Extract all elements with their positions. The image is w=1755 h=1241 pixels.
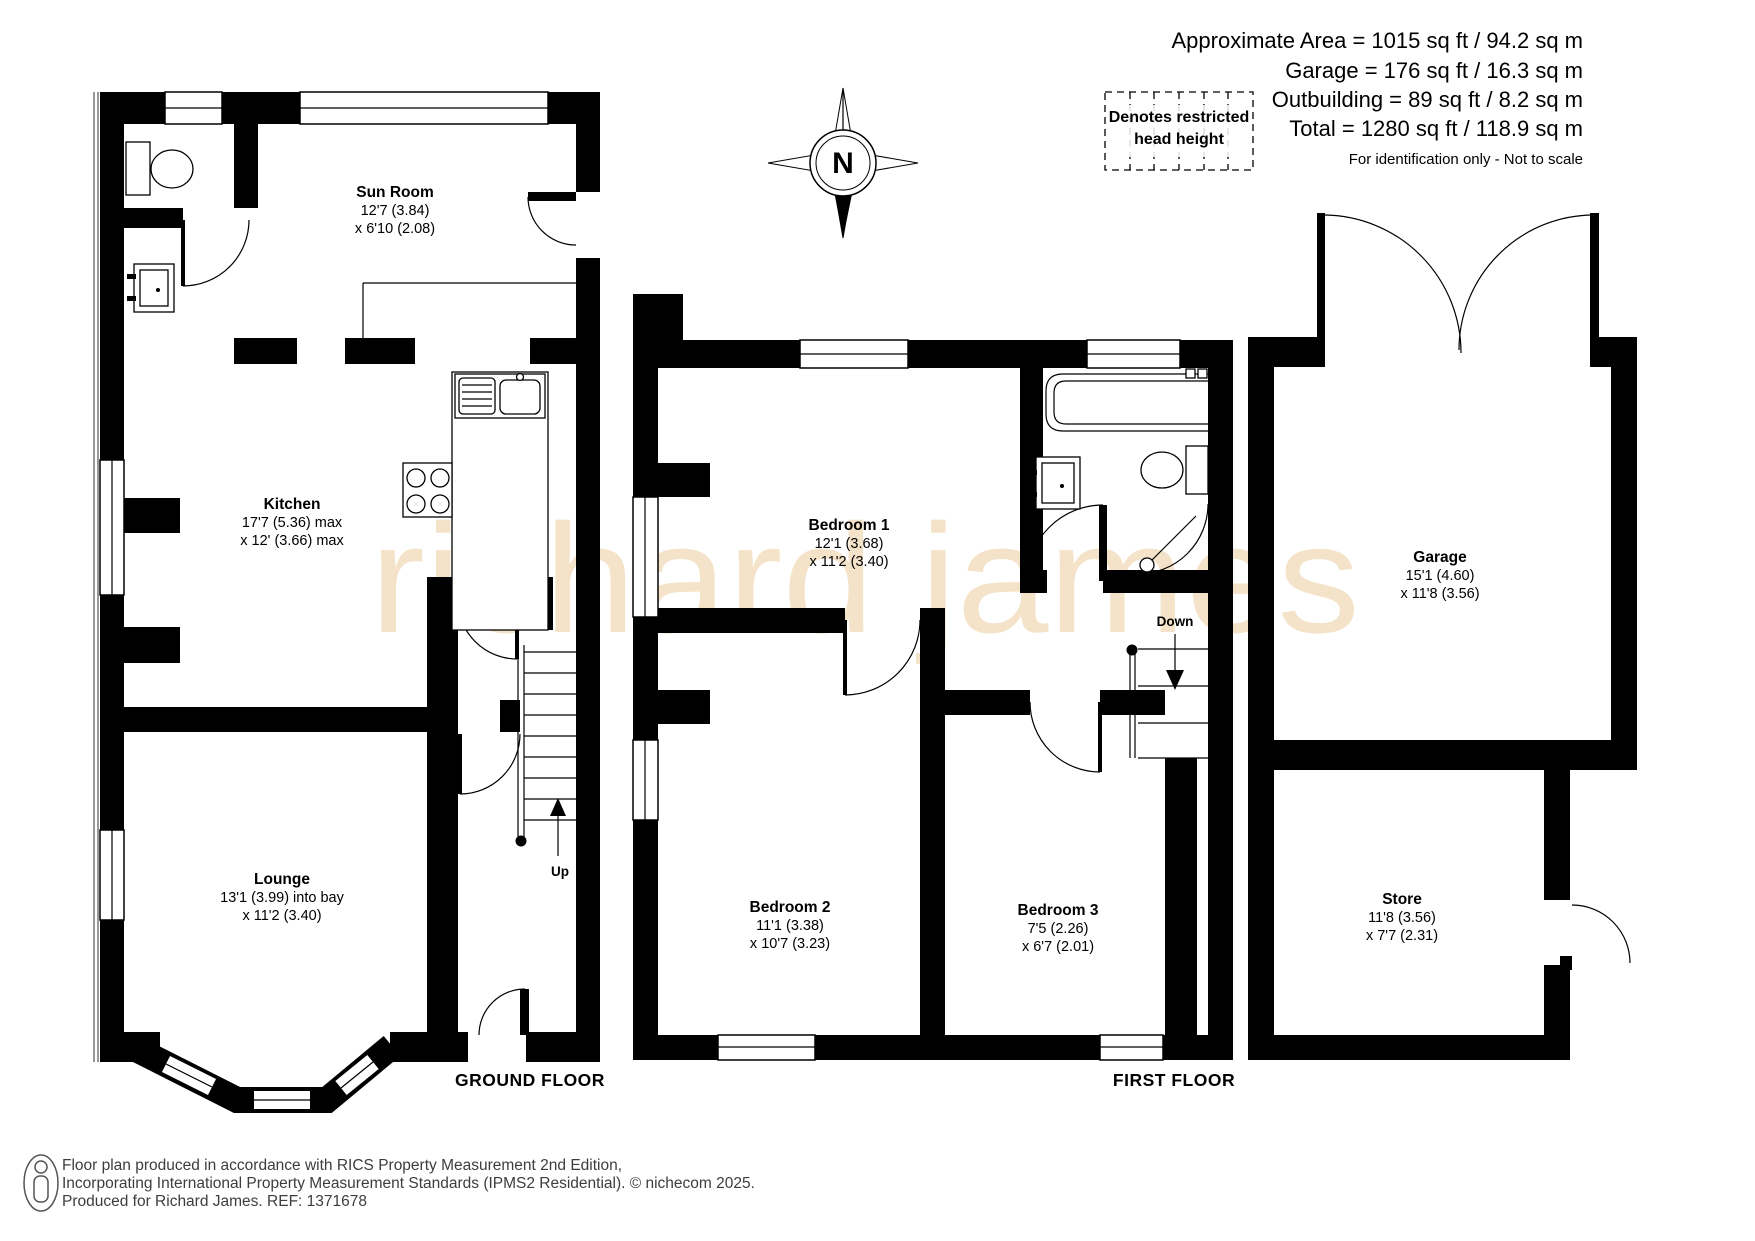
footer-line-1: Floor plan produced in accordance with R…: [62, 1157, 622, 1174]
svg-text:Bedroom 1: Bedroom 1: [809, 517, 890, 534]
lounge-label: Lounge 13'1 (3.99) into bay x 11'2 (3.40…: [220, 871, 344, 924]
svg-text:11'1 (3.38): 11'1 (3.38): [756, 918, 824, 934]
toilet-icon: [1186, 446, 1208, 494]
footer-line-3: Produced for Richard James. REF: 1371678: [62, 1193, 367, 1210]
svg-text:17'7 (5.36) max: 17'7 (5.36) max: [242, 515, 343, 531]
bedroom2-label: Bedroom 2 11'1 (3.38) x 10'7 (3.23): [750, 899, 831, 952]
bath-icon: [1046, 374, 1208, 431]
svg-text:Kitchen: Kitchen: [264, 496, 321, 513]
svg-text:13'1 (3.99) into bay: 13'1 (3.99) into bay: [220, 890, 344, 906]
svg-text:x 12' (3.66) max: x 12' (3.66) max: [240, 533, 344, 549]
svg-text:12'1 (3.68): 12'1 (3.68): [815, 536, 884, 552]
floorplan-page: richard james: [0, 0, 1755, 1241]
stairs-up-label: Up: [551, 864, 569, 879]
bay-window: [130, 1046, 392, 1100]
svg-text:Lounge: Lounge: [254, 871, 310, 888]
footer: Floor plan produced in accordance with R…: [24, 1155, 755, 1211]
svg-text:Sun Room: Sun Room: [356, 184, 434, 201]
toilet-icon: [126, 142, 150, 195]
store-label: Store 11'8 (3.56) x 7'7 (2.31): [1366, 891, 1438, 944]
restricted-height-legend: Denotes restricted head height: [1105, 92, 1253, 170]
stairs-up: Up: [516, 645, 577, 879]
legend-line2: head height: [1134, 131, 1224, 148]
up-arrow-icon: [550, 798, 566, 816]
footer-line-2: Incorporating International Property Mea…: [62, 1175, 755, 1192]
svg-text:15'1 (4.60): 15'1 (4.60): [1406, 568, 1475, 584]
sun-room-label: Sun Room 12'7 (3.84) x 6'10 (2.08): [355, 184, 435, 237]
floorplan-svg: richard james: [0, 0, 1755, 1241]
compass-icon: N: [768, 88, 918, 238]
area-line-1: Approximate Area = 1015 sq ft / 94.2 sq …: [1171, 28, 1583, 53]
area-line-4: Total = 1280 sq ft / 118.9 sq m: [1289, 116, 1583, 141]
svg-text:x 11'2 (3.40): x 11'2 (3.40): [809, 554, 888, 570]
person-logo-icon: [24, 1155, 58, 1211]
bedroom3-label: Bedroom 3 7'5 (2.26) x 6'7 (2.01): [1018, 902, 1099, 955]
kitchen-label: Kitchen 17'7 (5.36) max x 12' (3.66) max: [240, 496, 344, 549]
first-floor-windows: [633, 340, 1180, 1060]
bedroom1-label: Bedroom 1 12'1 (3.68) x 11'2 (3.40): [809, 517, 890, 570]
svg-text:x 11'2 (3.40): x 11'2 (3.40): [242, 908, 321, 924]
scale-note: For identification only - Not to scale: [1349, 151, 1583, 168]
compass-north-label: N: [832, 147, 854, 180]
svg-text:x 7'7 (2.31): x 7'7 (2.31): [1366, 928, 1438, 944]
svg-text:x 6'10 (2.08): x 6'10 (2.08): [355, 221, 435, 237]
garage-label: Garage 15'1 (4.60) x 11'8 (3.56): [1400, 549, 1479, 602]
down-arrow-icon: [1166, 670, 1184, 690]
svg-text:12'7 (3.84): 12'7 (3.84): [361, 203, 430, 219]
first-floor-walls: [633, 294, 1233, 1060]
svg-text:Garage: Garage: [1413, 549, 1467, 566]
legend-line1: Denotes restricted: [1109, 109, 1250, 126]
stairs-down-label: Down: [1157, 614, 1194, 629]
area-line-2: Garage = 176 sq ft / 16.3 sq m: [1285, 58, 1583, 83]
first-floor-plan: Down Bedroom 1 12'1 (3.68) x 11'2 (3.40)…: [633, 294, 1235, 1090]
svg-text:7'5 (2.26): 7'5 (2.26): [1028, 921, 1089, 937]
svg-text:x 6'7 (2.01): x 6'7 (2.01): [1022, 939, 1094, 955]
svg-text:x 10'7 (3.23): x 10'7 (3.23): [750, 936, 830, 952]
store-door-arc: [1572, 905, 1630, 963]
area-line-3: Outbuilding = 89 sq ft / 8.2 sq m: [1272, 87, 1583, 112]
svg-text:11'8 (3.56): 11'8 (3.56): [1368, 910, 1436, 926]
svg-text:x 11'8 (3.56): x 11'8 (3.56): [1400, 586, 1479, 602]
first-floor-title: FIRST FLOOR: [1113, 1070, 1235, 1090]
svg-text:Store: Store: [1382, 891, 1422, 908]
ground-floor-title: GROUND FLOOR: [455, 1070, 605, 1090]
svg-text:Bedroom 3: Bedroom 3: [1018, 902, 1099, 919]
svg-text:Bedroom 2: Bedroom 2: [750, 899, 831, 916]
ground-floor-plan: Up: [94, 92, 605, 1100]
